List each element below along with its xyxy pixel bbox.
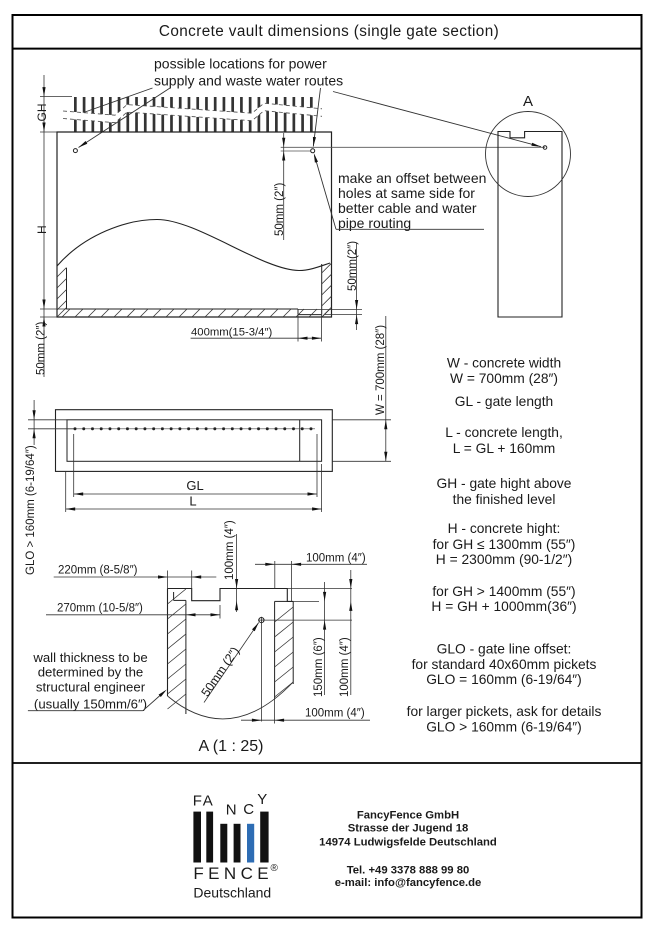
svg-text:Deutschland: Deutschland bbox=[193, 885, 271, 901]
svg-text:GLO > 160mm (6-19/64″): GLO > 160mm (6-19/64″) bbox=[426, 720, 582, 735]
svg-text:determined by the: determined by the bbox=[38, 664, 144, 679]
svg-text:50mm (2″): 50mm (2″) bbox=[274, 183, 286, 236]
svg-text:FancyFence GmbH: FancyFence GmbH bbox=[357, 809, 459, 821]
svg-text:W = 700mm (28″): W = 700mm (28″) bbox=[375, 325, 387, 415]
svg-text:50mm (2″): 50mm (2″) bbox=[36, 322, 48, 375]
svg-text:GL: GL bbox=[186, 478, 203, 493]
svg-text:L - concrete length,: L - concrete length, bbox=[445, 425, 563, 440]
svg-text:H: H bbox=[35, 225, 49, 234]
svg-text:100mm (4″): 100mm (4″) bbox=[339, 637, 351, 697]
svg-text:F: F bbox=[193, 793, 202, 810]
svg-text:for larger pickets, ask for de: for larger pickets, ask for details bbox=[407, 704, 602, 719]
svg-text:GH - gate hight above: GH - gate hight above bbox=[437, 476, 572, 491]
svg-text:A: A bbox=[523, 93, 533, 110]
svg-text:Concrete vault dimensions (sin: Concrete vault dimensions (single gate s… bbox=[159, 23, 499, 40]
svg-text:100mm (4″): 100mm (4″) bbox=[224, 520, 236, 580]
svg-text:GL - gate length: GL - gate length bbox=[455, 394, 553, 409]
svg-text:W = 700mm (28″): W = 700mm (28″) bbox=[450, 371, 558, 386]
svg-text:L: L bbox=[189, 494, 196, 509]
svg-text:100mm (4″): 100mm (4″) bbox=[306, 553, 366, 565]
svg-text:W - concrete width: W - concrete width bbox=[447, 356, 561, 371]
svg-text:better cable and water: better cable and water bbox=[338, 200, 477, 216]
svg-text:A (1 : 25): A (1 : 25) bbox=[199, 738, 264, 755]
svg-text:150mm (6″): 150mm (6″) bbox=[313, 637, 325, 697]
svg-text:L = GL + 160mm: L = GL + 160mm bbox=[453, 441, 556, 456]
svg-text:GH: GH bbox=[35, 104, 49, 122]
svg-text:270mm (10-5/8″): 270mm (10-5/8″) bbox=[57, 602, 143, 614]
svg-text:(usually 150mm/6″): (usually 150mm/6″) bbox=[34, 697, 147, 712]
svg-text:400mm(15-3/4″): 400mm(15-3/4″) bbox=[191, 326, 272, 338]
svg-text:for GH > 1400mm (55″): for GH > 1400mm (55″) bbox=[432, 584, 575, 599]
svg-text:GLO - gate line offset:: GLO - gate line offset: bbox=[437, 642, 572, 657]
svg-text:®: ® bbox=[271, 863, 279, 874]
svg-text:H = 2300mm (90-1/2″): H = 2300mm (90-1/2″) bbox=[436, 552, 572, 567]
svg-text:make an offset between: make an offset between bbox=[338, 170, 486, 186]
svg-text:Y: Y bbox=[257, 791, 267, 808]
svg-text:pipe routing: pipe routing bbox=[338, 215, 411, 231]
svg-text:A: A bbox=[203, 793, 213, 810]
svg-text:e-mail: info@fancyfence.de: e-mail: info@fancyfence.de bbox=[335, 877, 482, 889]
svg-text:GLO = 160mm (6-19/64″): GLO = 160mm (6-19/64″) bbox=[426, 672, 582, 687]
svg-text:Tel. +49 3378 888 99 80: Tel. +49 3378 888 99 80 bbox=[347, 865, 470, 877]
svg-text:structural engineer: structural engineer bbox=[36, 679, 146, 694]
svg-text:possible locations for power: possible locations for power bbox=[154, 56, 327, 72]
svg-text:50mm(2″): 50mm(2″) bbox=[347, 241, 359, 291]
svg-text:14974 Ludwigsfelde Deutschland: 14974 Ludwigsfelde Deutschland bbox=[319, 837, 497, 849]
svg-text:220mm (8-5/8″): 220mm (8-5/8″) bbox=[58, 565, 138, 577]
svg-text:H = GH + 1000mm(36″): H = GH + 1000mm(36″) bbox=[431, 599, 576, 614]
svg-text:N: N bbox=[226, 802, 237, 819]
svg-text:wall thickness to be: wall thickness to be bbox=[32, 650, 147, 665]
svg-text:for GH ≤ 1300mm (55″): for GH ≤ 1300mm (55″) bbox=[433, 537, 576, 552]
svg-text:the finished level: the finished level bbox=[453, 492, 556, 507]
svg-text:H - concrete hight:: H - concrete hight: bbox=[448, 521, 561, 536]
svg-text:holes at same side for: holes at same side for bbox=[338, 185, 475, 201]
svg-text:supply and waste water routes: supply and waste water routes bbox=[154, 73, 343, 89]
svg-text:for standard 40x60mm pickets: for standard 40x60mm pickets bbox=[412, 657, 597, 672]
svg-text:100mm (4″): 100mm (4″) bbox=[305, 708, 365, 720]
svg-text:C: C bbox=[243, 801, 254, 818]
svg-text:Strasse der Jugend 18: Strasse der Jugend 18 bbox=[348, 823, 469, 835]
svg-text:GLO > 160mm (6-19/64″): GLO > 160mm (6-19/64″) bbox=[25, 445, 37, 575]
